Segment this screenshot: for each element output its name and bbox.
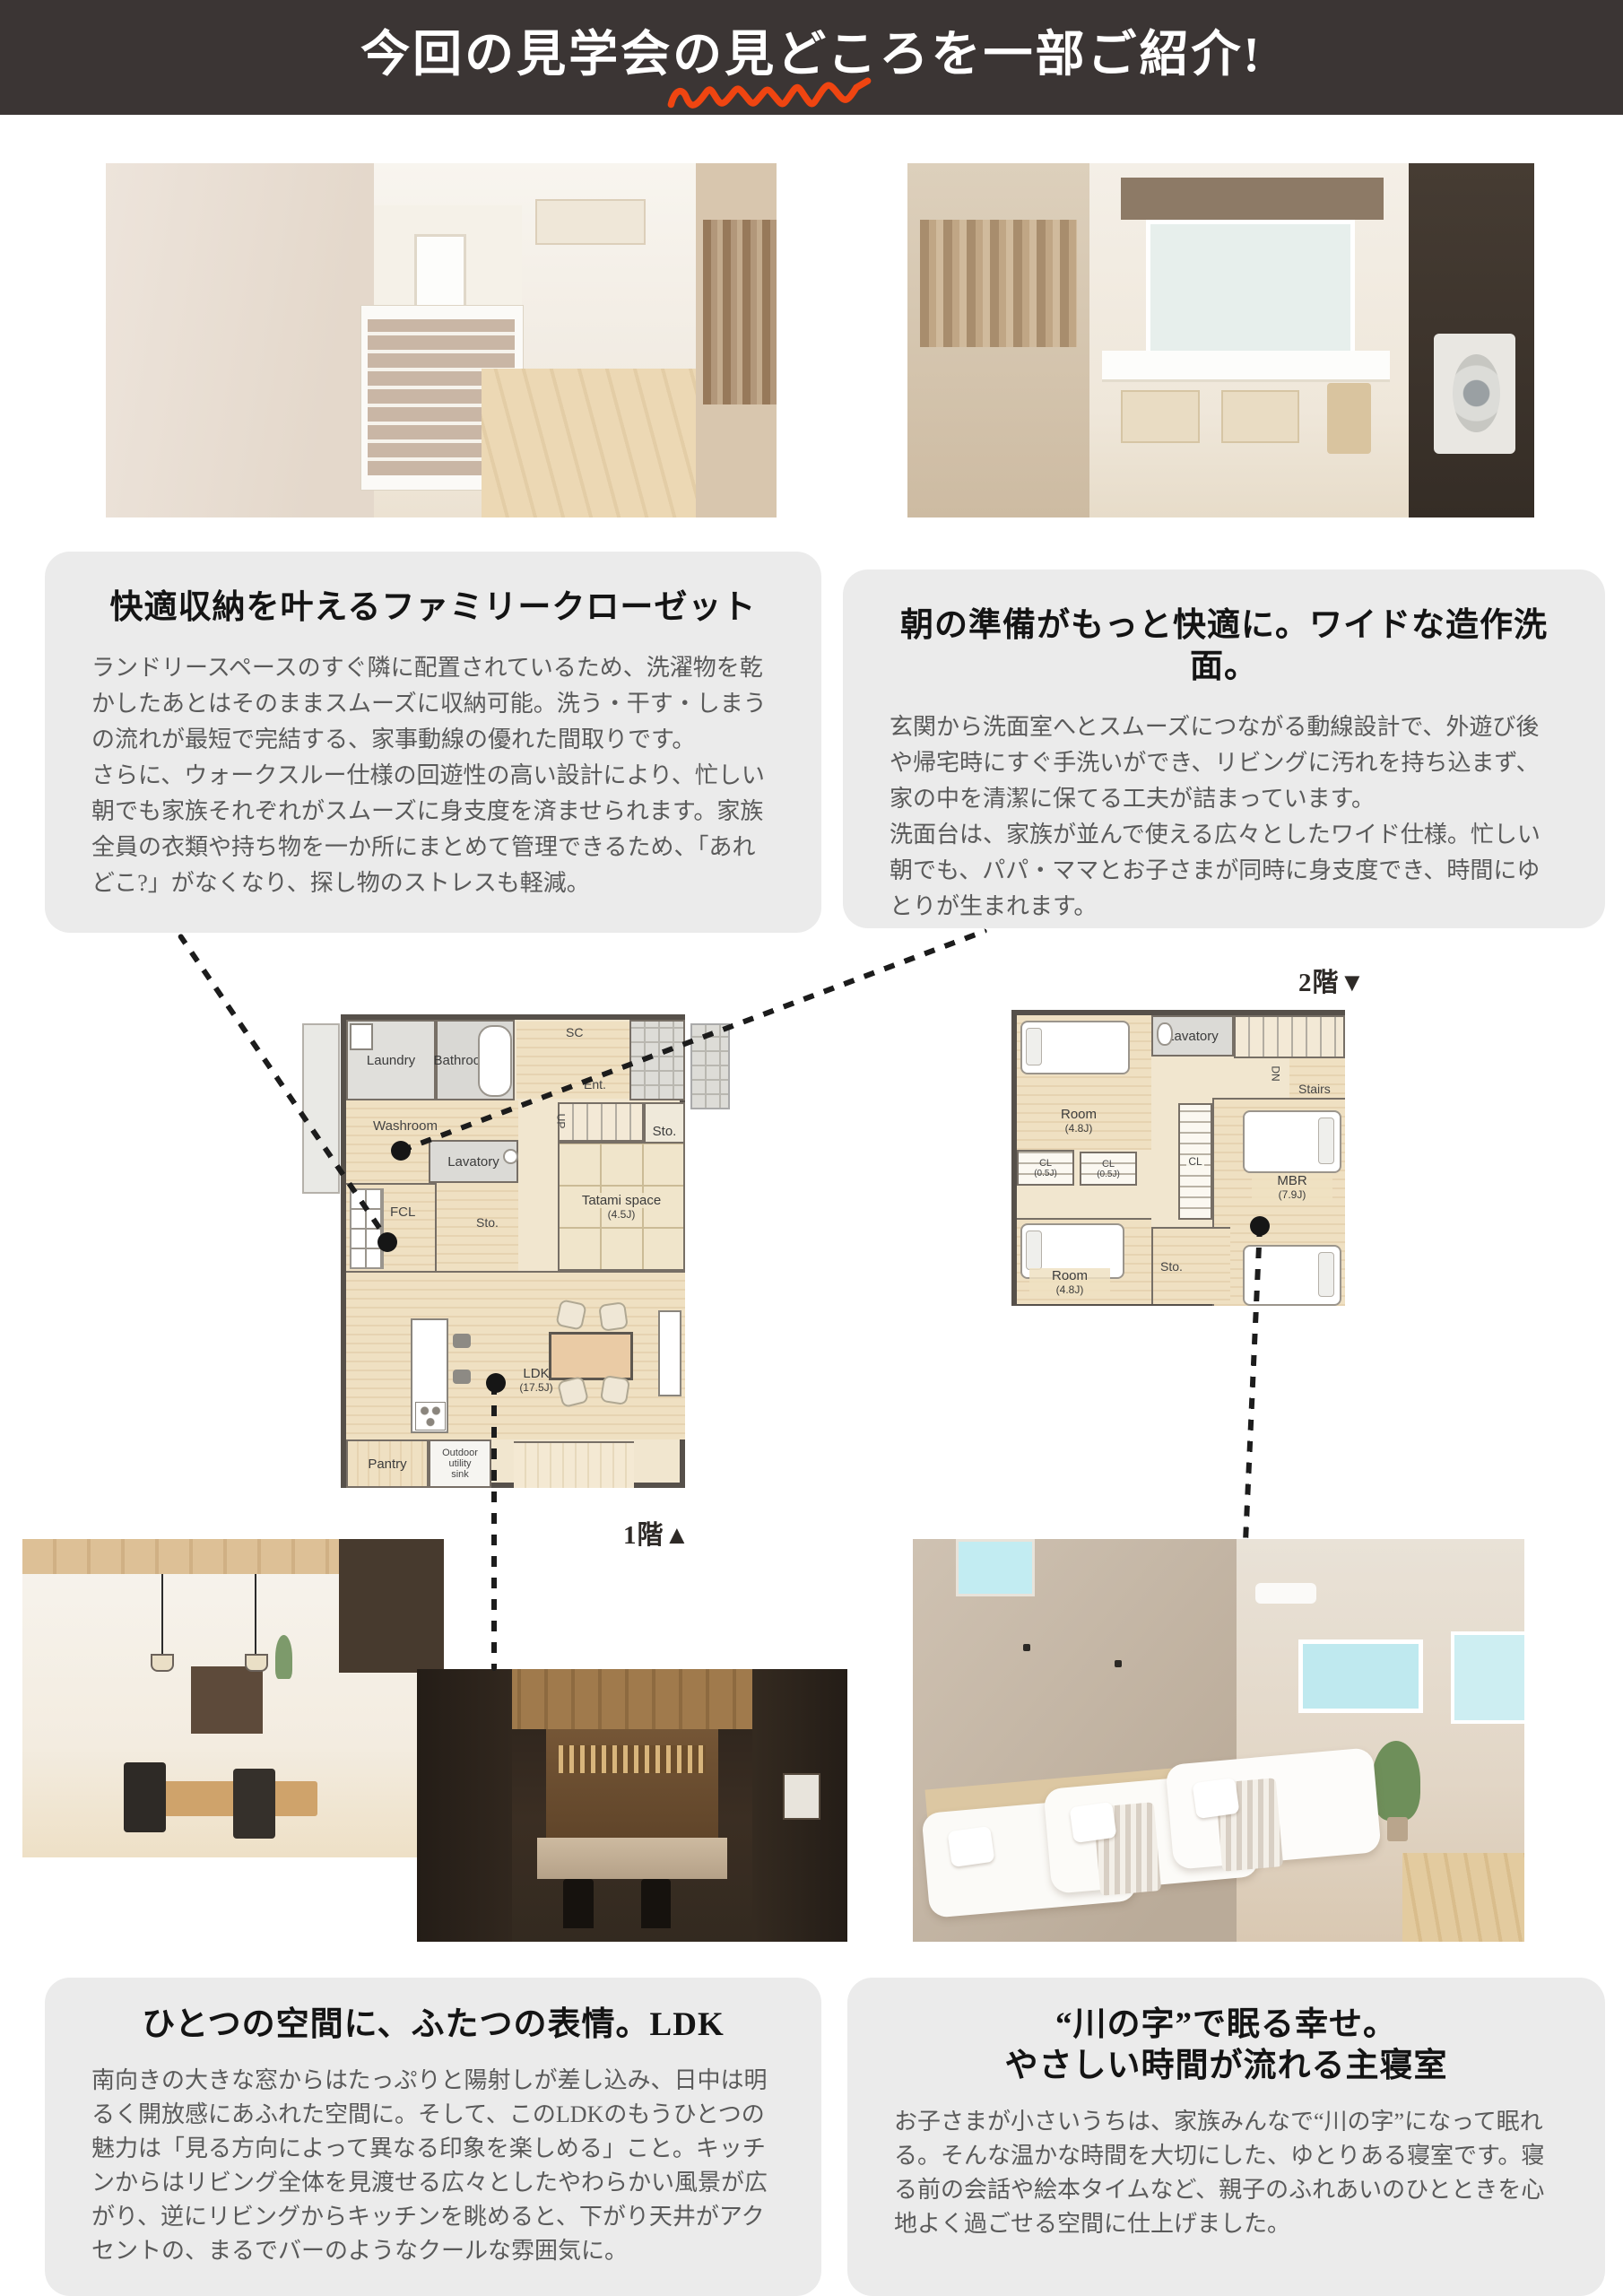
label-stairs: Stairs: [1298, 1082, 1331, 1096]
family-closet-photo: [106, 163, 777, 517]
pouf-chair: [598, 1301, 629, 1332]
floor-label-1f: 1階▲: [623, 1514, 690, 1552]
stairs-2f: [1234, 1015, 1345, 1058]
label-up: UP: [554, 1114, 567, 1129]
label-sc: SC: [566, 1025, 583, 1039]
washstand-body-text: 玄関から洗面室へとスムーズにつながる動線設計で、外遊び後や帰宅時にすぐ手洗いがで…: [890, 709, 1558, 925]
ldk-heading: ひとつの空間に、ふたつの表情。LDK: [45, 1978, 821, 2046]
bedroom-heading-line2: やさしい時間が流れる主寝室: [874, 2046, 1578, 2087]
room-cl2: CL (0.5J): [1080, 1152, 1137, 1186]
stove-icon: [415, 1402, 446, 1431]
stairs-up-1f: [558, 1102, 644, 1142]
counter-chair: [453, 1370, 471, 1384]
marker-dot-ldk: [486, 1373, 506, 1393]
closet-body-text: ランドリースペースのすぐ隣に配置されているため、洗濯物を乾かしたあとはそのままス…: [91, 650, 775, 901]
closet-infobox: 快適収納を叶えるファミリークローゼット ランドリースペースのすぐ隣に配置されてい…: [45, 552, 821, 933]
pillow-icon: [1318, 1252, 1334, 1297]
sink-icon: [503, 1149, 518, 1164]
ldk-body-text: 南向きの大きな窓からはたっぷりと陽射しが差し込み、日中は明るく開放感にあふれた空…: [91, 2064, 775, 2268]
room-pantry: Pantry: [346, 1439, 429, 1488]
washroom-photo: [907, 163, 1534, 517]
washstand-infobox: 朝の準備がもっと快適に。ワイドな造作洗面。 玄関から洗面室へとスムーズにつながる…: [843, 570, 1605, 928]
label-sto-2f: Sto.: [1160, 1259, 1183, 1274]
dining-table: [549, 1332, 633, 1380]
porch-left: [302, 1023, 340, 1194]
room-outdoor-sink: Outdoor utility sink: [429, 1439, 491, 1488]
marker-dot-washroom: [391, 1141, 411, 1161]
floor-label-2f: 2階▼: [1298, 961, 1366, 999]
leader-line-ldk: [491, 1384, 497, 1671]
bedroom-heading: “川の字”で眠る幸せ。 やさしい時間が流れる主寝室: [847, 1978, 1605, 2087]
bedroom-heading-line1: “川の字”で眠る幸せ。: [874, 2005, 1578, 2046]
toilet-icon: [1157, 1022, 1173, 1046]
room-cl1: CL (0.5J): [1017, 1150, 1074, 1186]
closet-heading: 快適収納を叶えるファミリークローゼット: [45, 552, 821, 629]
label-room-top-block: Room (4.8J): [1038, 1107, 1119, 1135]
flyer-page: 今回の見学会の見どころを一部ご紹介! 快適収納を叶えるファミリークローゼット: [0, 0, 1623, 2296]
ldk-infobox: ひとつの空間に、ふたつの表情。LDK 南向きの大きな窓からはたっぷりと陽射しが差…: [45, 1978, 821, 2296]
bathtub-icon: [478, 1025, 512, 1097]
floorplan-1f: Laundry Bathroom SC Ent. Washroom Lavato…: [300, 1009, 731, 1547]
label-sto-mid: Sto.: [476, 1215, 499, 1230]
label-room-bottom-block: Room (4.8J): [1029, 1268, 1110, 1296]
kitchen-bar-photo: [417, 1669, 847, 1942]
pillow-icon: [1026, 1028, 1042, 1065]
tv-cabinet: [658, 1310, 681, 1396]
marker-dot-fcl: [378, 1232, 397, 1252]
washstand-heading: 朝の準備がもっと快適に。ワイドな造作洗面。: [843, 570, 1605, 688]
pillow-icon: [1026, 1231, 1042, 1270]
counter-chair: [453, 1334, 471, 1348]
living-ldk-photo: [22, 1539, 444, 1857]
title-underline-squiggle-icon: [665, 75, 873, 115]
master-bedroom-photo: [913, 1539, 1524, 1942]
washer-icon: [350, 1023, 373, 1050]
label-fcl: FCL: [390, 1205, 415, 1220]
label-mbr-block: MBR (7.9J): [1252, 1173, 1332, 1201]
room-cl-center: CL: [1178, 1103, 1212, 1220]
label-dn: DN: [1270, 1065, 1282, 1081]
floorplan-2f: Room (4.8J) Lavatory DN Stairs CL (0.5J)…: [1002, 1003, 1406, 1357]
label-washroom: Washroom: [356, 1118, 455, 1134]
room-ldk: [346, 1271, 685, 1439]
bedroom-infobox: “川の字”で眠る幸せ。 やさしい時間が流れる主寝室 お子さまが小さいうちは、家族…: [847, 1978, 1605, 2296]
deck: [514, 1441, 634, 1488]
pouf-chair: [600, 1375, 630, 1405]
bedroom-body-text: お子さまが小さいうちは、家族みんなで“川の字”になって眠れる。そんな温かな時間を…: [894, 2105, 1558, 2241]
pillow-icon: [1318, 1118, 1334, 1164]
marker-dot-mbr: [1250, 1216, 1270, 1236]
room-tatami: Tatami space (4.5J): [558, 1142, 685, 1271]
porch-bottom-right: [634, 1441, 685, 1488]
